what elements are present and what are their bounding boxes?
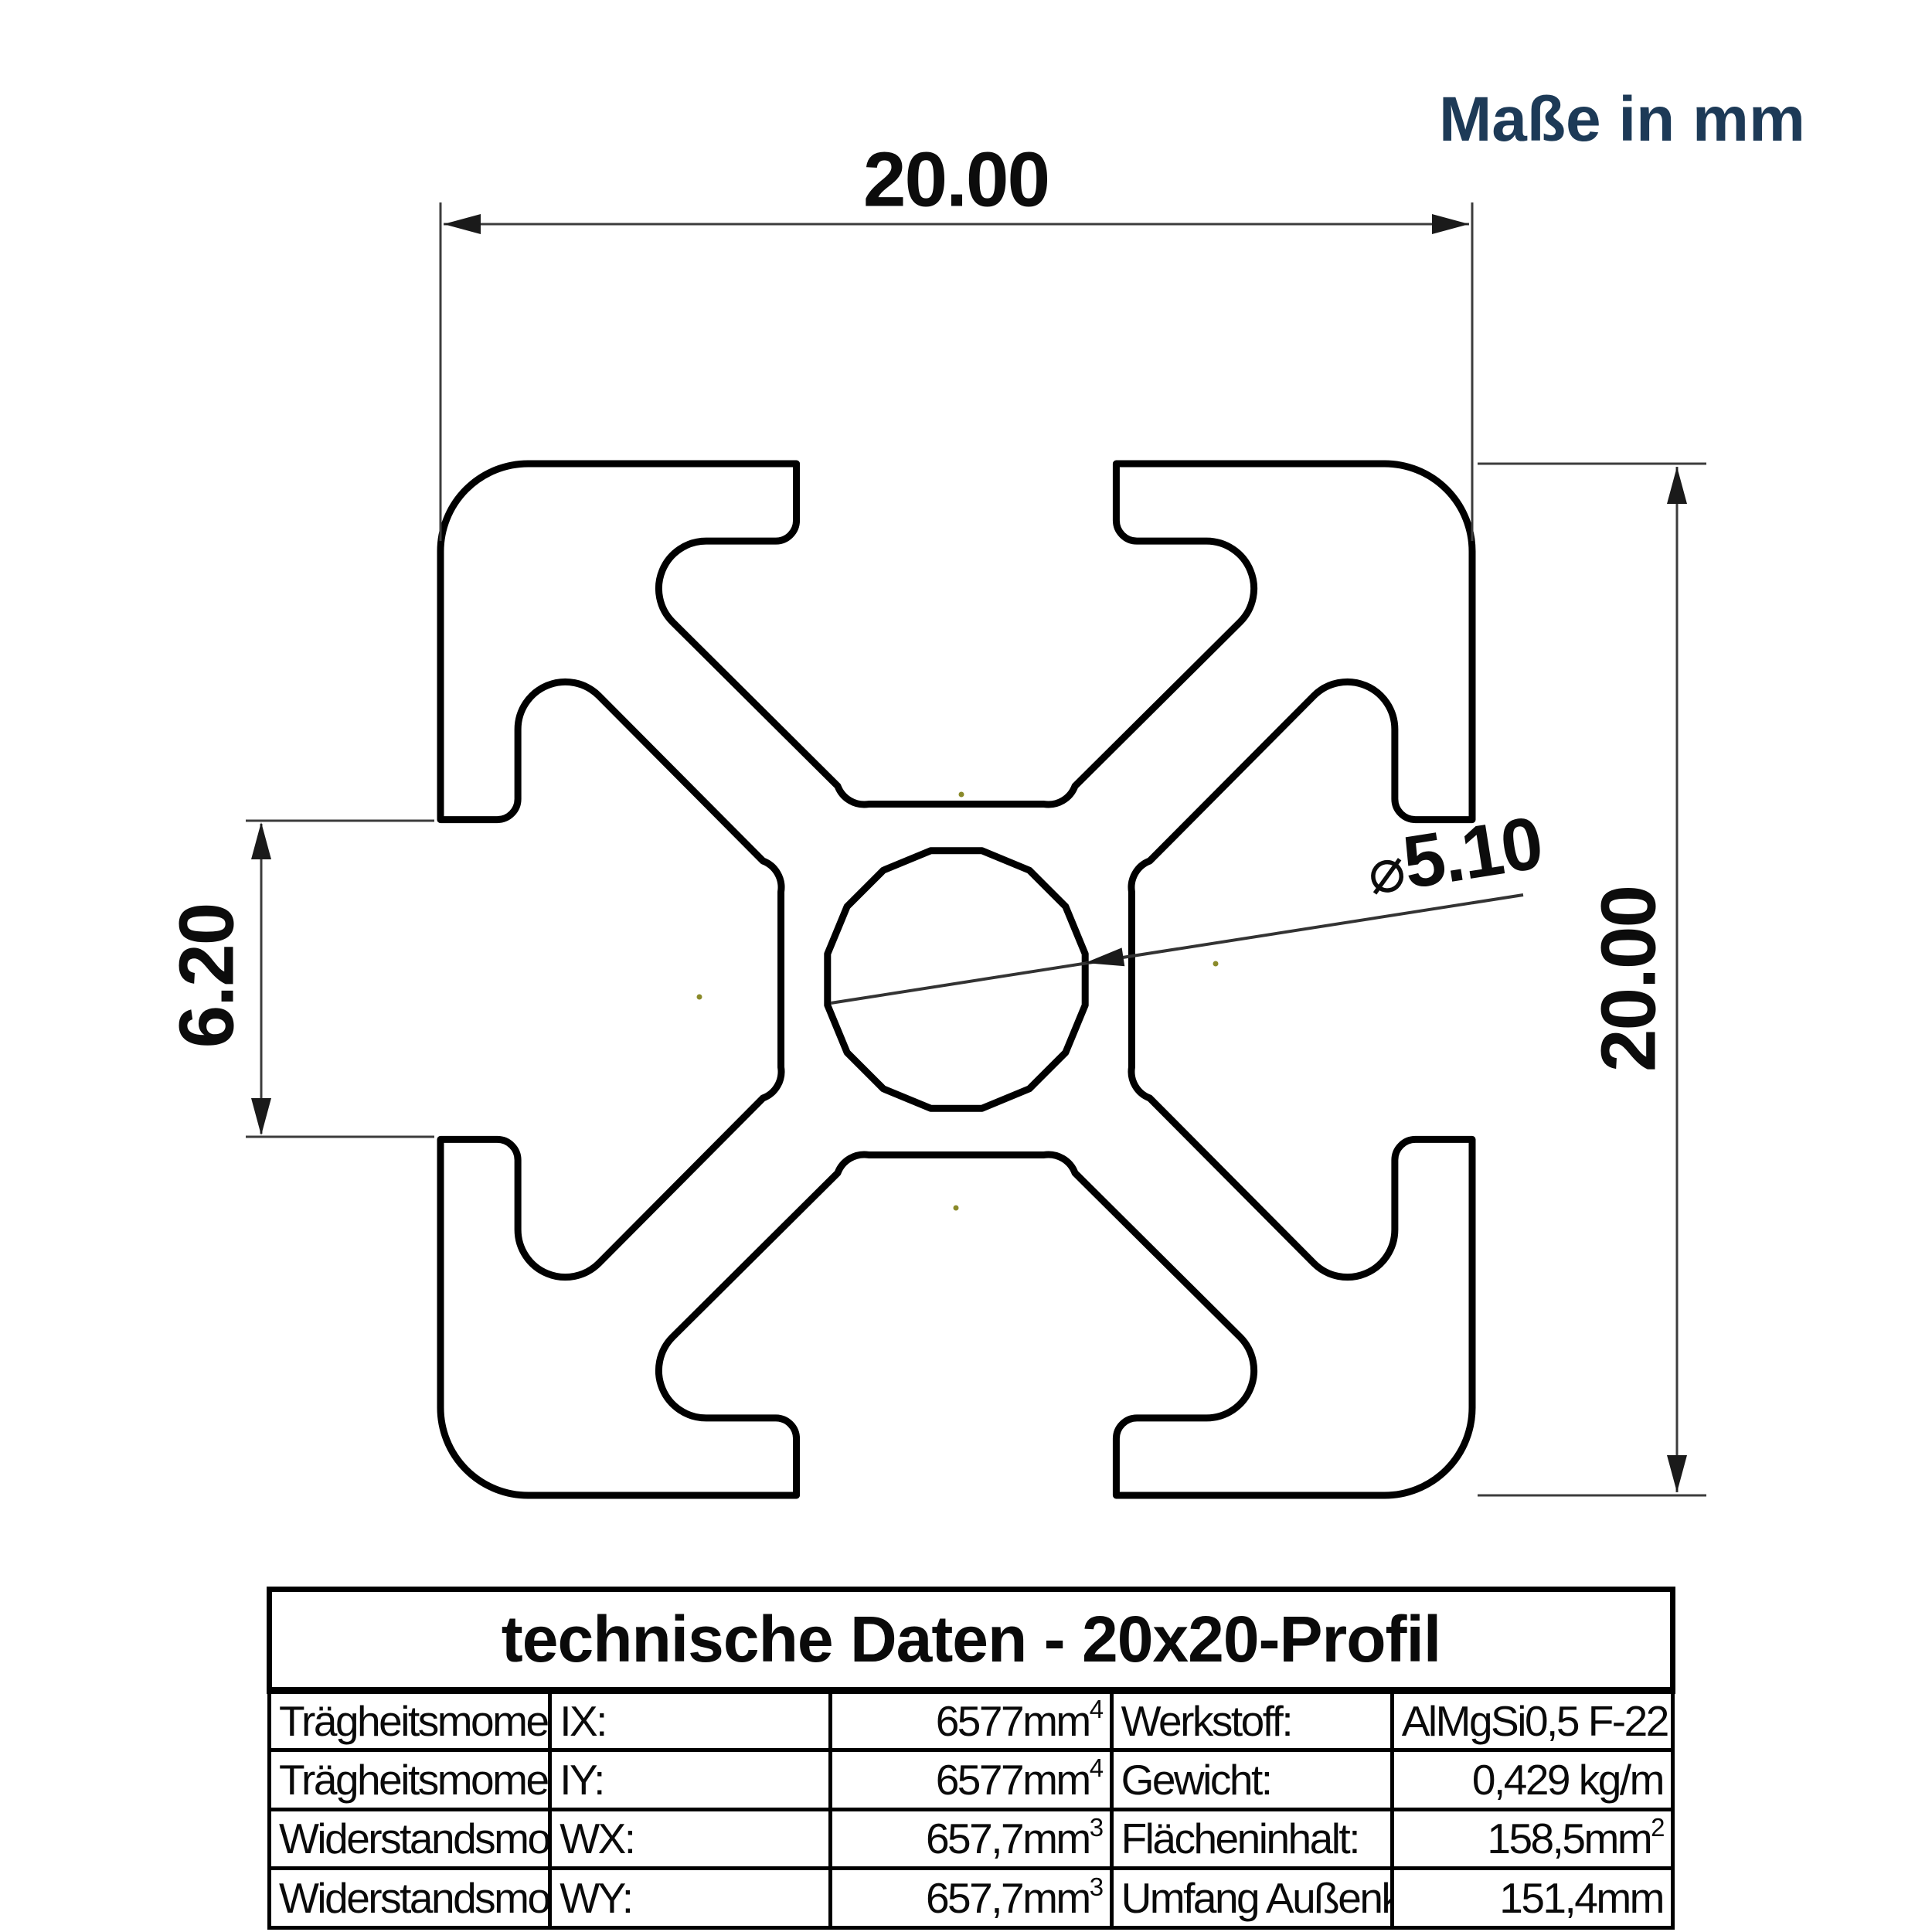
cad-vertex-dot <box>959 792 964 798</box>
cell-property: Widerstandsmoment <box>270 1809 550 1869</box>
cell-value2: 151,4mm <box>1392 1869 1672 1928</box>
cell-value2: AlMgSi0,5 F-22 <box>1392 1691 1672 1750</box>
table-row: Trägheitsmoment IX: 6577mm4 Werkstoff: A… <box>270 1691 1673 1750</box>
table-title: technische Daten - 20x20-Profil <box>270 1590 1673 1691</box>
cell-value2: 0,429 kg/m <box>1392 1750 1672 1809</box>
center-bore-circle <box>828 851 1085 1108</box>
cell-symbol: WY: <box>550 1869 831 1928</box>
cad-vertex-dot <box>954 1206 959 1211</box>
cell-value: 657,7mm3 <box>831 1869 1111 1928</box>
table-row: Trägheitsmoment IY: 6577mm4 Gewicht: 0,4… <box>270 1750 1673 1809</box>
arrowhead-up-icon <box>1667 467 1687 504</box>
cell-value2: 158,5mm2 <box>1392 1809 1672 1869</box>
dimension-value-slot-opening: 6.20 <box>163 904 252 1049</box>
technical-drawing-page: Maße in mm 20.00 20.00 6.20 ⌀5.10 techni… <box>0 0 1932 1932</box>
table-row: Widerstandsmoment WX: 657,7mm3 Flächenin… <box>270 1809 1673 1869</box>
cell-property2: Flächeninhalt: <box>1111 1809 1392 1869</box>
table-row: Widerstandsmoment WY: 657,7mm3 Umfang Au… <box>270 1869 1673 1928</box>
cad-vertex-dot <box>1213 961 1219 967</box>
arrowhead-down-icon <box>251 1098 271 1135</box>
cell-property: Widerstandsmoment <box>270 1869 550 1928</box>
table-title-row: technische Daten - 20x20-Profil <box>270 1590 1673 1691</box>
technical-data-table: technische Daten - 20x20-Profil Trägheit… <box>267 1587 1675 1930</box>
cell-symbol: IX: <box>550 1691 831 1750</box>
arrowhead-up-icon <box>251 822 271 859</box>
dimension-value-height: 20.00 <box>1585 886 1674 1072</box>
cell-property2: Umfang Außenkontur: <box>1111 1869 1392 1928</box>
cell-property: Trägheitsmoment <box>270 1750 550 1809</box>
cell-symbol: IY: <box>550 1750 831 1809</box>
leader-line-bore <box>831 895 1523 1003</box>
cell-value: 6577mm4 <box>831 1691 1111 1750</box>
units-note: Maße in mm <box>1439 83 1805 156</box>
cell-property2: Gewicht: <box>1111 1750 1392 1809</box>
arrowhead-right-icon <box>1432 214 1469 234</box>
profile-outline <box>440 464 1472 1495</box>
cell-value: 6577mm4 <box>831 1750 1111 1809</box>
cell-property2: Werkstoff: <box>1111 1691 1392 1750</box>
arrowhead-left-icon <box>444 214 481 234</box>
cad-vertex-dot <box>697 995 702 1000</box>
cell-value: 657,7mm3 <box>831 1809 1111 1869</box>
cell-symbol: WX: <box>550 1809 831 1869</box>
cell-property: Trägheitsmoment <box>270 1691 550 1750</box>
arrowhead-down-icon <box>1667 1455 1687 1492</box>
dimension-value-width: 20.00 <box>863 136 1049 225</box>
